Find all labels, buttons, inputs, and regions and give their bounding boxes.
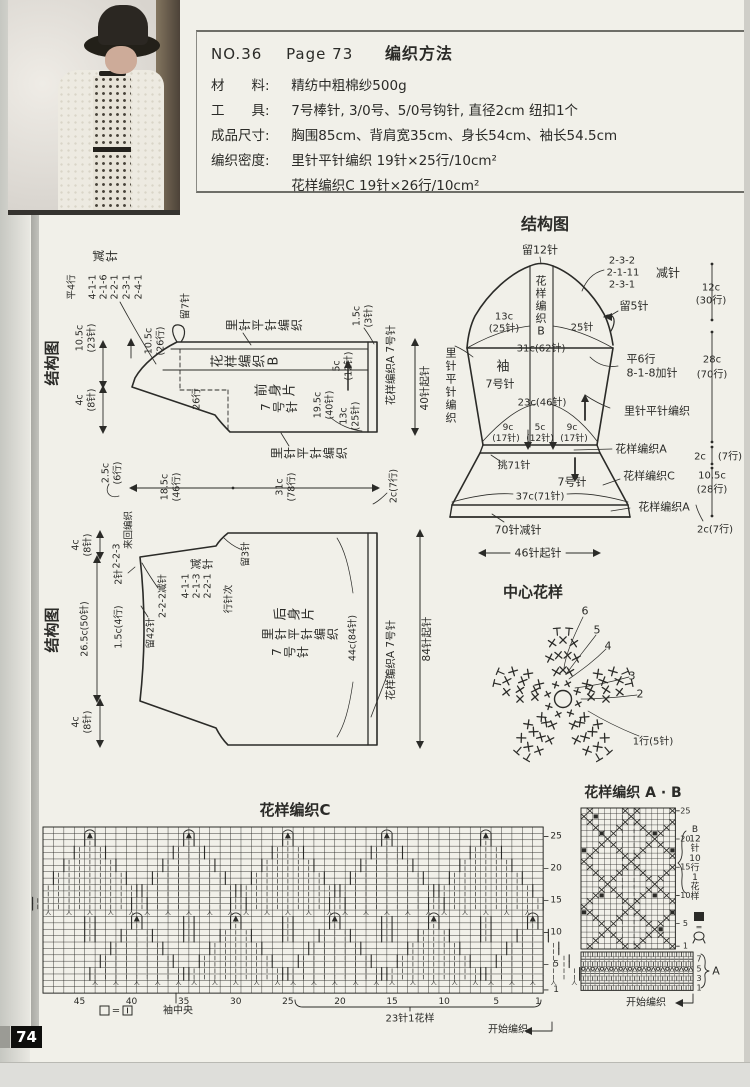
chart-c-decrease-symbol: 人: [405, 910, 411, 917]
diagram-label: 84针起针: [420, 617, 433, 662]
center-motif-title: 中心花样: [503, 583, 563, 601]
measure-dot: [711, 463, 714, 466]
chart-a-yarnover: [647, 967, 650, 970]
arrowhead: [96, 530, 104, 538]
chart-b-side-label: 10: [689, 854, 701, 864]
diagram-label: 平: [296, 447, 310, 459]
motif-cross-stitch: [528, 720, 529, 729]
chart-a-k2tog: [616, 967, 618, 971]
chart-a-k2tog: [689, 967, 691, 971]
motif-leader-line: [567, 635, 596, 673]
diagram-label: 针: [295, 646, 310, 658]
motif-cross-stitch: [524, 673, 533, 674]
diagram-label: 针: [284, 401, 299, 413]
measure-dot: [711, 263, 714, 266]
diagram-label: 减: [92, 250, 106, 262]
diagram-label: (17针): [492, 432, 519, 444]
chart-b-side-label: 1: [692, 873, 698, 883]
chart-c-decrease-symbol: 人: [113, 980, 119, 987]
chart-c-decrease-symbol: 人: [389, 980, 395, 987]
motif-cross-stitch: [597, 669, 598, 678]
measure-dot: [131, 487, 134, 490]
sleeve-outline: [467, 348, 483, 445]
diagram-label: (78行): [286, 472, 298, 501]
diagram-label: 花样编织A 7号针: [384, 325, 397, 405]
motif-round-number: 5: [594, 624, 601, 637]
chart-c-repeat-brace: [295, 1000, 541, 1007]
chart-c-row-number: 5: [553, 959, 559, 969]
chart-c-arc: [481, 830, 491, 833]
diagram-label: 2.5c: [101, 463, 112, 483]
diagram-label: 2-2-1: [110, 275, 121, 300]
diagram-label: (26行): [155, 326, 167, 355]
measure-dot: [711, 331, 714, 334]
diagram-label: 10.5c: [75, 325, 86, 351]
arrowhead: [99, 426, 107, 434]
diagram-label: 编: [446, 398, 457, 412]
front-piece-outline: [107, 484, 119, 497]
back-piece-outline: [142, 563, 158, 588]
diagram-label: 10.5c: [698, 471, 726, 482]
chart-ab-start-label: 开始编织: [626, 996, 666, 1009]
diagram-label: (46行): [171, 472, 183, 501]
motif-cross-stitch: [593, 724, 602, 725]
motif-chain: [605, 747, 610, 752]
motif-cross-stitch: [552, 670, 560, 675]
measure-dot: [711, 446, 714, 449]
sleeve-outline: [467, 266, 530, 348]
diagram-label: 花样编织A: [615, 442, 667, 456]
diagram-label: 针: [273, 628, 288, 640]
diagram-label: (17针): [560, 432, 587, 444]
chart-b-side-label: 针: [690, 842, 699, 854]
chart-c-decrease-symbol: 人: [274, 980, 280, 987]
pattern-diagram: 结构图减针平4行4-1-12-1-62-2-12-3-12-4-1留7针10.5…: [0, 0, 750, 1087]
diagram-label: 挑71针: [498, 459, 531, 472]
chart-c-decrease-symbol: 人: [571, 980, 577, 987]
measure-dot: [232, 487, 235, 490]
motif-cross-stitch: [516, 687, 524, 692]
motif-cross-stitch: [567, 712, 573, 714]
sleeve-outline: [450, 505, 452, 517]
diagram-label: 2-3-1: [122, 275, 133, 300]
diagram-label: 行针次: [223, 584, 235, 613]
chart-b-bobble-square: [653, 893, 657, 897]
sleeve-schematic-title: 结构图: [520, 215, 569, 234]
chart-c-decrease-symbol: 人: [462, 910, 468, 917]
motif-chain: [523, 758, 529, 762]
diagram-label: 2c(7行): [697, 523, 733, 536]
diagram-label: 40针起针: [418, 366, 431, 411]
chart-c-row-number: 15: [550, 895, 561, 905]
chart-c-decrease-symbol: 人: [233, 980, 239, 987]
diagram-label: 4-1-1: [181, 574, 192, 599]
chart-c-row-number: 25: [550, 832, 561, 842]
motif-chain: [625, 683, 632, 685]
motif-chain: [494, 683, 501, 685]
diagram-label: 针: [299, 628, 314, 640]
chart-c-decrease-symbol: 人: [175, 980, 181, 987]
motif-chain: [526, 754, 530, 760]
diagram-label: 23c(46针): [518, 396, 567, 409]
motif-round1-label: 1行(5针): [633, 735, 674, 748]
chart-a-k2tog: [670, 967, 672, 971]
motif-chain: [596, 754, 600, 760]
diagram-label: 针: [446, 359, 457, 373]
diagram-label: 织: [335, 447, 349, 459]
chart-a-yarnover: [628, 967, 631, 970]
diagram-label: 身: [268, 383, 284, 396]
diagram-label: (6行): [112, 462, 124, 485]
chart-a-row-number: 7: [697, 955, 702, 964]
diagram-label: 19.5c: [313, 392, 324, 418]
chart-b-bobble-square: [659, 927, 663, 931]
arrowhead: [96, 740, 104, 748]
chart-a-yarnover: [656, 967, 659, 970]
sleeve-outline: [590, 357, 618, 366]
front-piece-outline: [281, 433, 289, 446]
chart-c-decrease-symbol: 人: [134, 980, 140, 987]
diagram-label: 样: [536, 286, 547, 300]
chart-c-stitch-number: 15: [386, 997, 397, 1007]
motif-cross-stitch: [548, 641, 555, 646]
front-piece-outline: [173, 325, 185, 342]
diagram-label: 1.5c: [352, 306, 363, 326]
chart-c-decrease-symbol: 人: [285, 910, 291, 917]
diagram-label: 18.5c: [160, 474, 171, 500]
diagram-label: 7号针: [486, 377, 515, 391]
legend-bobble-square: [694, 912, 704, 921]
motif-cross-stitch: [580, 717, 589, 718]
motif-cross-stitch: [576, 688, 578, 694]
diagram-label: (12针): [526, 432, 553, 444]
motif-cross-stitch: [541, 713, 542, 722]
chart-c-decrease-symbol: 人: [254, 980, 260, 987]
diagram-label: 2-3-2: [609, 256, 635, 267]
diagram-label: 身: [287, 607, 303, 620]
diagram-label: 后: [274, 607, 289, 620]
sleeve-outline: [492, 514, 504, 522]
chart-c-decrease-symbol: 人: [243, 910, 249, 917]
diagram-label: 2-2-3: [112, 544, 123, 569]
measure-dot: [376, 487, 379, 490]
motif-chain: [516, 747, 521, 752]
chart-c-row-number: 10: [550, 927, 562, 937]
chart-a-yarnover: [619, 967, 622, 970]
diagram-label: 5c: [535, 423, 546, 433]
motif-chain: [493, 680, 495, 687]
diagram-label: 里针平针编织: [624, 404, 690, 418]
arrowhead: [411, 338, 419, 346]
chart-c-center-label: 袖中央: [163, 1004, 193, 1017]
chart-c-decrease-symbol: 人: [530, 980, 536, 987]
chart-c-repeat-label: 23针1花样: [385, 1012, 434, 1025]
chart-a-yarnover: [684, 967, 687, 970]
chart-c-decrease-symbol: 人: [45, 910, 51, 917]
front-piece-outline: [243, 333, 251, 345]
chart-a-k2tog: [596, 967, 598, 971]
diagram-label: 片: [302, 607, 317, 620]
chart-c-title: 花样编织C: [259, 801, 330, 819]
chart-a-k2tog: [633, 967, 635, 971]
diagram-label: 里: [270, 447, 284, 459]
chart-c-legend-equals: =: [112, 1006, 120, 1017]
diagram-label: 4c: [71, 539, 82, 550]
motif-chain: [569, 628, 570, 635]
diagram-label: (28行): [697, 483, 728, 496]
sleeve-outline: [480, 445, 483, 453]
chart-a-yarnover: [582, 967, 585, 970]
legend-bobble-icon: [703, 939, 705, 943]
chart-a-k2tog: [653, 967, 655, 971]
sleeve-outline: [452, 453, 480, 505]
diagram-label: 留12针: [522, 243, 558, 257]
chart-b-bobble-square: [653, 831, 657, 835]
back-schematic-title: 结构图: [43, 607, 61, 652]
diagram-label: 平: [446, 373, 457, 386]
chart-a-side-label: A: [712, 965, 720, 978]
diagram-label: 44c(84针): [347, 615, 359, 661]
diagram-label: 来回编织: [123, 511, 135, 549]
measure-dot: [711, 319, 714, 322]
diagram-label: 平: [287, 628, 301, 640]
motif-chain: [566, 628, 573, 629]
diagram-label: 针: [308, 447, 323, 459]
chart-c-stitch-number: 45: [74, 997, 85, 1007]
diagram-label: 针: [104, 250, 119, 262]
diagram-label: 2-4-1: [134, 275, 145, 300]
motif-cross-stitch: [604, 686, 609, 694]
sleeve-outline: [574, 449, 612, 450]
chart-b-row-number: 5: [683, 919, 688, 928]
chart-c-decrease-symbol: 人: [342, 910, 348, 917]
diagram-label: (8针): [82, 711, 94, 734]
front-piece-outline: [373, 493, 387, 504]
chart-c-decrease-symbol: 人: [472, 980, 478, 987]
arrowhead: [581, 394, 589, 402]
chart-b-row-number: 25: [680, 806, 690, 815]
diagram-label: 里: [446, 347, 457, 360]
arrowhead: [416, 529, 424, 537]
motif-cross-stitch: [576, 722, 585, 723]
diagram-label: 2-2-1: [203, 574, 214, 599]
diagram-label: 样: [225, 354, 240, 367]
chart-c-decrease-symbol: 人: [509, 980, 515, 987]
back-piece-outline: [337, 538, 353, 593]
chart-c-decrease-symbol: 人: [66, 910, 72, 917]
chart-c-stitch-number: 25: [282, 997, 293, 1007]
diagram-label: 织: [446, 412, 457, 425]
sleeve-outline: [628, 505, 630, 517]
diagram-label: 留7针: [179, 293, 192, 319]
diagram-label: 针: [282, 447, 297, 459]
chart-a-k2tog: [681, 967, 683, 971]
motif-chain: [622, 671, 628, 674]
diagram-label: 7号针: [558, 475, 587, 489]
chart-c-decrease-symbol: 人: [290, 980, 296, 987]
diagram-label: B: [537, 325, 545, 338]
diagram-label: 31c: [275, 478, 286, 495]
diagram-label: (3针): [363, 305, 375, 328]
chart-c-decrease-symbol: 人: [165, 910, 171, 917]
motif-round-number: 6: [582, 605, 589, 618]
diagram-label: 号: [283, 646, 297, 658]
chart-a-brace: [701, 954, 709, 988]
sleeve-outline: [611, 508, 630, 511]
arrowhead: [411, 428, 419, 436]
chart-a-k2tog: [605, 967, 607, 971]
chart-b-bobble-square: [582, 848, 586, 852]
chart-a-row-number: 5: [697, 964, 702, 973]
diagram-label: 织: [326, 628, 340, 640]
diagram-label: 2-3-1: [609, 280, 635, 291]
chart-c-decrease-symbol: 人: [332, 980, 338, 987]
chart-a-yarnover: [600, 967, 603, 970]
diagram-label: 4c: [71, 716, 82, 727]
arrowhead: [99, 385, 107, 393]
diagram-label: 前: [254, 383, 270, 396]
arrowhead: [478, 549, 486, 557]
diagram-label: 花: [536, 275, 547, 288]
back-piece-outline: [337, 682, 353, 737]
diagram-label: 1.5c(4行): [113, 605, 125, 648]
measure-dot: [711, 441, 714, 444]
arrowhead: [99, 340, 107, 348]
chart-a-k2tog: [597, 967, 599, 971]
chart-c-row-number: 1: [553, 985, 559, 995]
motif-round-number: 4: [605, 640, 612, 653]
diagram-label: 平: [251, 319, 265, 331]
chart-c-decrease-symbol: 人: [311, 980, 317, 987]
chart-c-decrease-symbol: 人: [212, 980, 218, 987]
chart-c-decrease-symbol: 人: [87, 910, 93, 917]
arrowhead: [604, 313, 612, 321]
diagram-label: 减针: [656, 265, 680, 280]
legend-equals: =: [696, 923, 703, 932]
chart-a-yarnover: [591, 967, 594, 970]
chart-c-decrease-symbol: 人: [363, 910, 369, 917]
motif-chain: [557, 628, 558, 635]
diagram-label: 织: [290, 319, 304, 331]
sleeve-outline: [452, 494, 513, 502]
diagram-label: 9c: [567, 423, 578, 433]
diagram-label: 平4行: [66, 274, 78, 300]
chart-c-decrease-symbol: 人: [504, 910, 510, 917]
chart-b-side-label: 花: [690, 881, 699, 893]
chart-a-k2tog: [661, 967, 663, 971]
chart-b-side-label: B: [692, 825, 698, 835]
chart-b-side-label: 12: [689, 835, 700, 845]
arrowhead: [416, 741, 424, 749]
measure-dot: [711, 515, 714, 518]
sleeve-outline: [567, 494, 628, 502]
chart-a-k2tog: [635, 967, 637, 971]
chart-a-yarnover: [610, 967, 613, 970]
chart-b-bobble-square: [594, 814, 598, 818]
chart-a-k2tog: [672, 967, 674, 971]
chart-ab-title: 花样编织 A · B: [584, 784, 681, 801]
chart-b-bobble-square: [670, 848, 674, 852]
diagram-label: (25针): [350, 401, 362, 430]
chart-a-k2tog: [642, 967, 644, 971]
scanned-pattern-page: NO.36 Page 73 编织方法 材 料: 精纺中粗棉纱500g 工 具: …: [0, 0, 750, 1087]
chart-c-decrease-symbol: 人: [410, 980, 416, 987]
diagram-label: 10.5c: [144, 328, 155, 354]
chart-a-k2tog: [588, 967, 590, 971]
chart-a-yarnover: [675, 967, 678, 970]
diagram-label: 12c: [702, 283, 720, 294]
motif-round-number: 2: [637, 688, 644, 701]
page-number: 74: [11, 1026, 42, 1048]
motif-cross-stitch: [545, 718, 546, 727]
diagram-label: 2c(7行): [388, 469, 400, 503]
diagram-label: 26行: [191, 388, 203, 410]
chart-c-decrease-symbol: 人: [353, 980, 359, 987]
diagram-label: 2-1-3: [192, 574, 203, 599]
diagram-label: 花样编织C: [623, 469, 675, 483]
chart-c-decrease-symbol: 人: [306, 910, 312, 917]
chart-b-side-label: 行: [690, 861, 699, 873]
diagram-label: 13c: [339, 407, 350, 424]
legend-bobble-icon: [693, 939, 695, 943]
chart-c-decrease-symbol: 人: [108, 910, 114, 917]
motif-cross-stitch: [617, 689, 623, 696]
chart-a-k2tog: [691, 967, 693, 971]
diagram-label: 2-1-6: [99, 275, 110, 300]
diagram-label: 2针: [113, 569, 125, 585]
diagram-label: 编: [536, 299, 547, 313]
diagram-label: (12针): [343, 351, 355, 380]
diagram-label: 25针: [571, 321, 594, 334]
diagram-label: 织: [536, 312, 547, 325]
chart-b-row-number: 1: [683, 942, 688, 951]
chart-a-k2tog: [607, 967, 609, 971]
diagram-label: 针: [446, 385, 457, 399]
diagram-label: 里: [261, 628, 275, 640]
chart-c-stitch-number: 30: [230, 997, 242, 1007]
motif-cross-stitch: [552, 684, 558, 686]
chart-a-row-number: 3: [697, 974, 702, 983]
diagram-label: 编: [321, 447, 336, 459]
diagram-label: (40针): [324, 390, 336, 419]
diagram-label: 46针起针: [515, 546, 562, 560]
arrowhead: [127, 338, 135, 346]
diagram-label: B: [267, 357, 282, 366]
back-piece-outline: [224, 538, 240, 549]
chart-c-stitch-number: 10: [438, 997, 450, 1007]
diagram-label: 31c(62针): [517, 342, 566, 355]
diagram-label: 花: [210, 354, 226, 367]
diagram-label: 针: [201, 559, 215, 570]
chart-c-decrease-symbol: 人: [92, 980, 98, 987]
diagram-label: (7行): [718, 450, 742, 463]
chart-a-k2tog: [614, 967, 616, 971]
front-schematic-title: 结构图: [43, 340, 61, 385]
diagram-label: 袖: [496, 360, 509, 375]
chart-c-arc: [283, 830, 293, 833]
diagram-label: 13c: [495, 312, 513, 323]
diagram-label: 花样编织A: [638, 500, 690, 514]
diagram-label: (23针): [86, 323, 98, 352]
diagram-label: (30行): [696, 294, 727, 307]
chart-a-yarnover: [638, 967, 641, 970]
chart-a-yarnover: [666, 967, 669, 970]
diagram-label: 7: [270, 648, 284, 656]
diagram-label: (8针): [86, 389, 98, 412]
diagram-label: (25针): [489, 322, 520, 335]
chart-c-start-label: 开始编织: [488, 1023, 528, 1036]
motif-round-number: 3: [629, 670, 636, 683]
